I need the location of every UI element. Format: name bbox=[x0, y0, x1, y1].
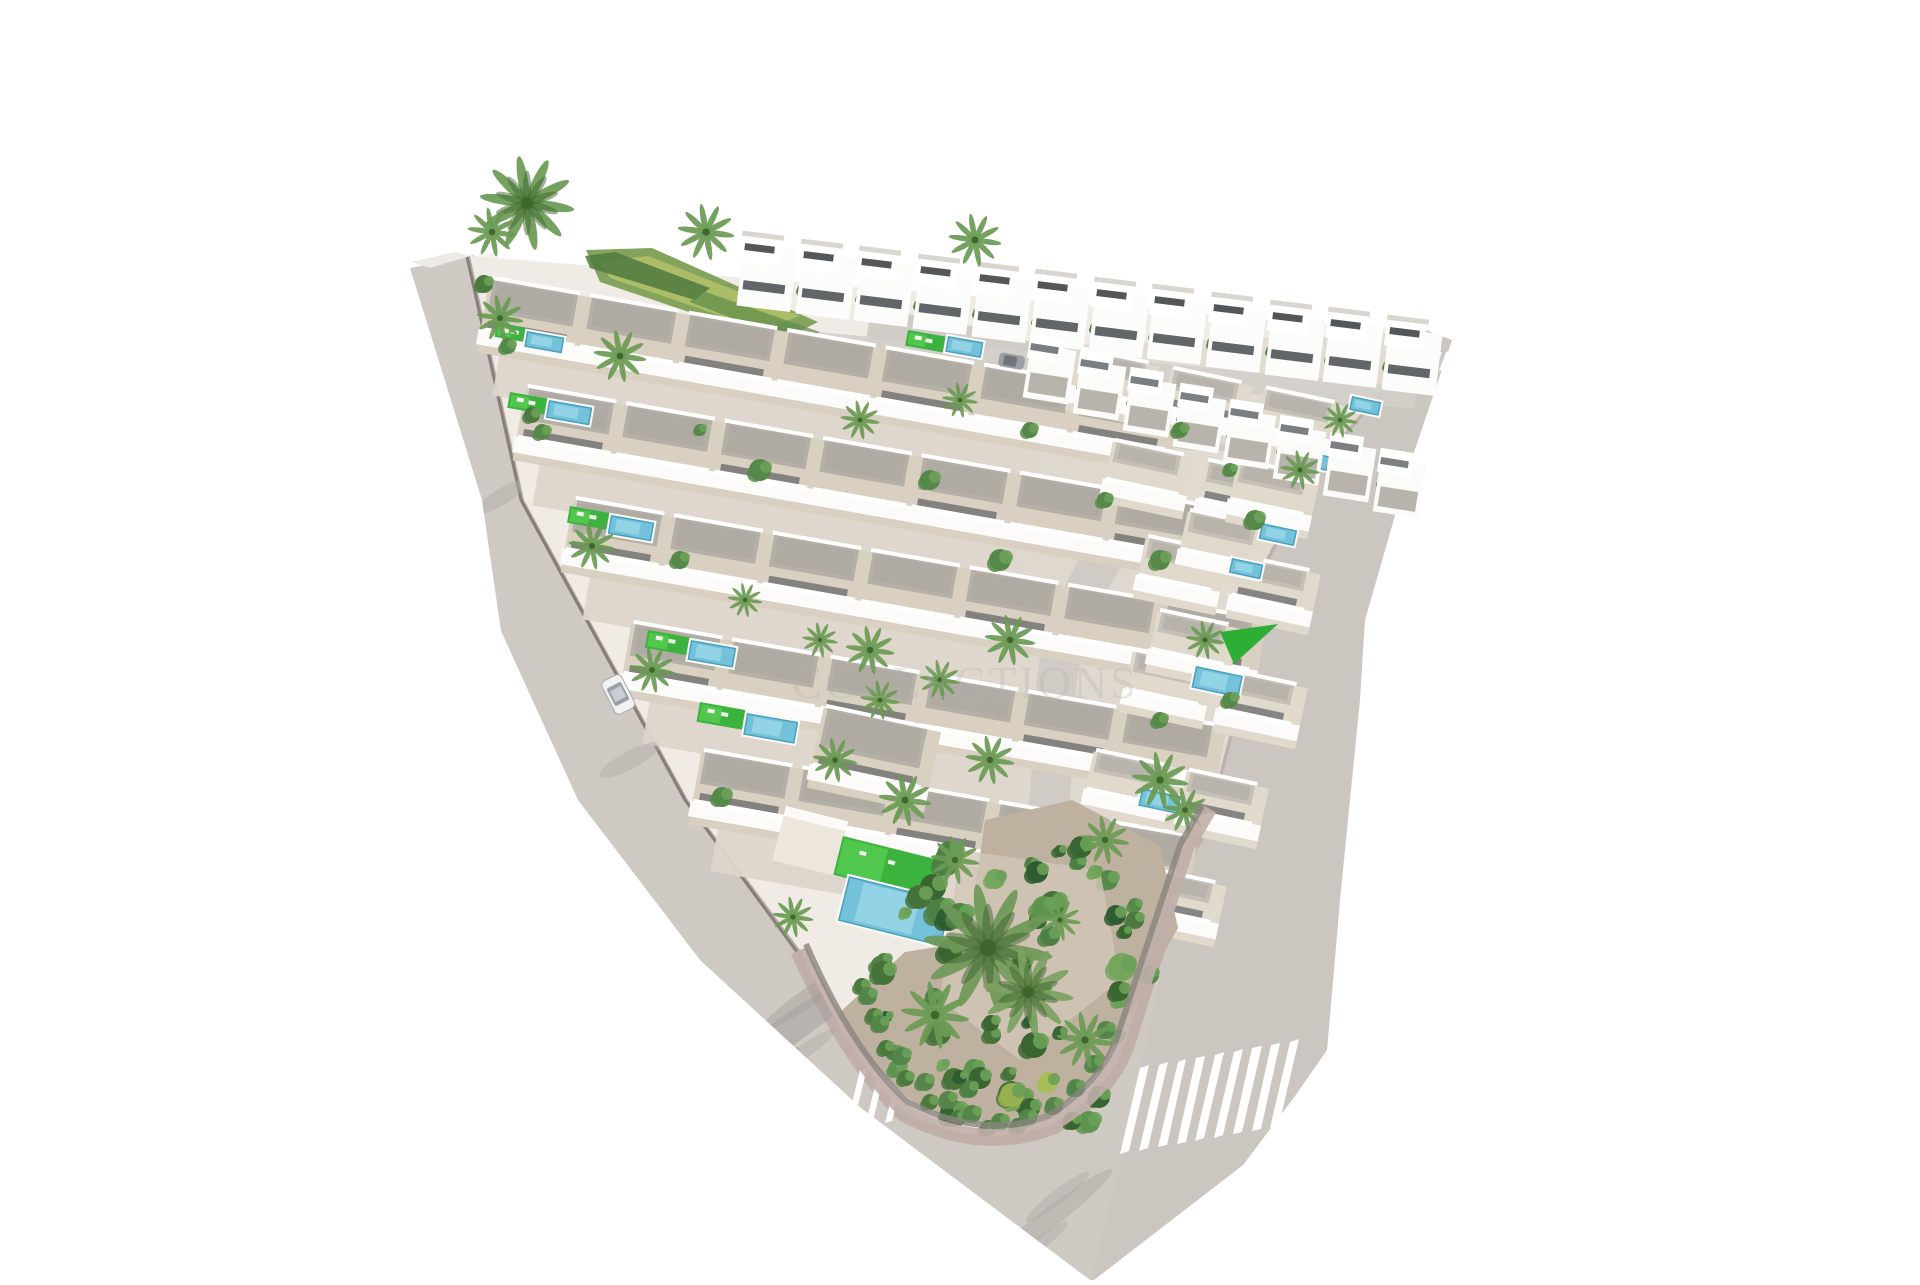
svg-text:COLLECTIONS: COLLECTIONS bbox=[791, 657, 1138, 708]
